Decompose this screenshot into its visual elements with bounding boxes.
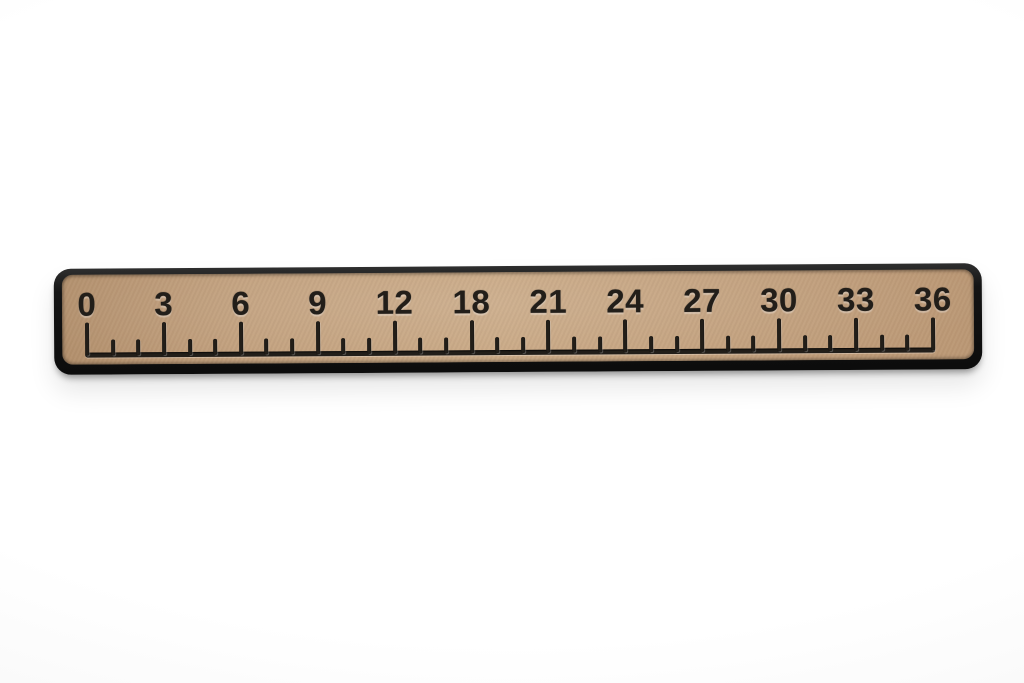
- minor-tick: [213, 339, 217, 355]
- ruler-number: 27: [683, 284, 721, 318]
- major-tick: [470, 320, 474, 353]
- minor-tick: [418, 338, 422, 354]
- ruler-surface: 03691218212427303336: [62, 269, 975, 365]
- major-tick: [162, 322, 166, 355]
- minor-tick: [521, 337, 525, 353]
- minor-tick: [290, 338, 294, 354]
- minor-tick: [341, 338, 345, 354]
- ruler-number: 9: [308, 286, 327, 320]
- major-tick: [931, 317, 935, 350]
- ruler-scale: 03691218212427303336: [62, 269, 975, 365]
- minor-tick: [649, 336, 653, 352]
- minor-tick: [572, 337, 576, 353]
- major-tick: [85, 323, 89, 356]
- major-tick: [546, 320, 550, 353]
- ruler-number: 36: [914, 282, 952, 316]
- minor-tick: [726, 336, 730, 352]
- minor-tick: [828, 335, 832, 351]
- major-tick: [316, 321, 320, 354]
- minor-tick: [752, 336, 756, 352]
- major-tick: [239, 322, 243, 355]
- minor-tick: [136, 339, 140, 355]
- major-tick: [777, 318, 781, 351]
- photo-background: 03691218212427303336: [0, 0, 1024, 683]
- minor-tick: [265, 339, 269, 355]
- minor-tick: [111, 339, 115, 355]
- ruler-number: 12: [376, 286, 414, 320]
- minor-tick: [598, 336, 602, 352]
- ruler-number: 33: [837, 283, 875, 317]
- minor-tick: [367, 338, 371, 354]
- ruler-number: 3: [154, 287, 173, 321]
- ruler-number: 6: [231, 287, 250, 321]
- minor-tick: [905, 335, 909, 351]
- minor-tick: [880, 335, 884, 351]
- major-tick: [623, 319, 627, 352]
- minor-tick: [444, 337, 448, 353]
- minor-tick: [495, 337, 499, 353]
- ruler-number: 24: [606, 284, 644, 318]
- ruler-number: 18: [452, 285, 490, 319]
- minor-tick: [188, 339, 192, 355]
- ruler-number: 21: [529, 285, 567, 319]
- major-tick: [393, 321, 397, 354]
- ruler-number: 30: [760, 283, 798, 317]
- major-tick: [700, 319, 704, 352]
- ruler: 03691218212427303336: [54, 263, 983, 375]
- minor-tick: [803, 335, 807, 351]
- major-tick: [854, 318, 858, 351]
- ruler-number: 0: [77, 288, 96, 322]
- minor-tick: [675, 336, 679, 352]
